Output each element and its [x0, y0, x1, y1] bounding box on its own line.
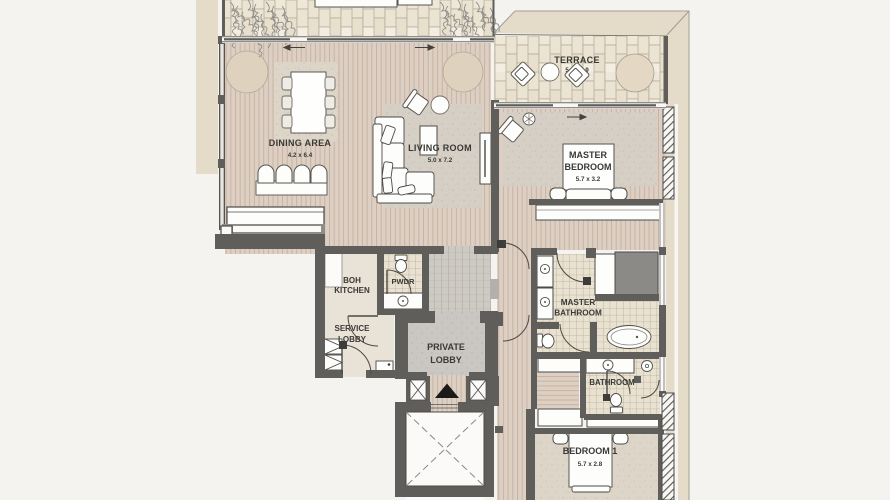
svg-text:MASTER: MASTER	[569, 150, 608, 160]
svg-text:BEDROOM 1: BEDROOM 1	[563, 446, 618, 456]
svg-text:LOBBY: LOBBY	[338, 335, 367, 344]
svg-text:5.7 x 3.2: 5.7 x 3.2	[576, 176, 601, 183]
svg-text:4.2 x 6.4: 4.2 x 6.4	[288, 152, 313, 159]
svg-text:MASTER: MASTER	[561, 298, 596, 307]
svg-text:BOH: BOH	[343, 276, 361, 285]
svg-text:PRIVATE: PRIVATE	[427, 342, 465, 352]
svg-text:PWDR: PWDR	[392, 277, 415, 286]
svg-text:TERRACE: TERRACE	[554, 55, 600, 65]
svg-text:LIVING ROOM: LIVING ROOM	[408, 143, 472, 153]
svg-text:5.7 x 2.8: 5.7 x 2.8	[578, 461, 603, 468]
svg-text:KITCHEN: KITCHEN	[334, 286, 370, 295]
svg-text:LOBBY: LOBBY	[430, 355, 462, 365]
svg-text:BEDROOM: BEDROOM	[565, 162, 612, 172]
svg-text:5.0 x 7.2: 5.0 x 7.2	[428, 157, 453, 164]
svg-text:SERVICE: SERVICE	[335, 324, 371, 333]
svg-text:BATHROOM: BATHROOM	[554, 309, 602, 318]
svg-text:BATHROOM: BATHROOM	[589, 378, 634, 387]
svg-text:DINING AREA: DINING AREA	[269, 138, 332, 148]
